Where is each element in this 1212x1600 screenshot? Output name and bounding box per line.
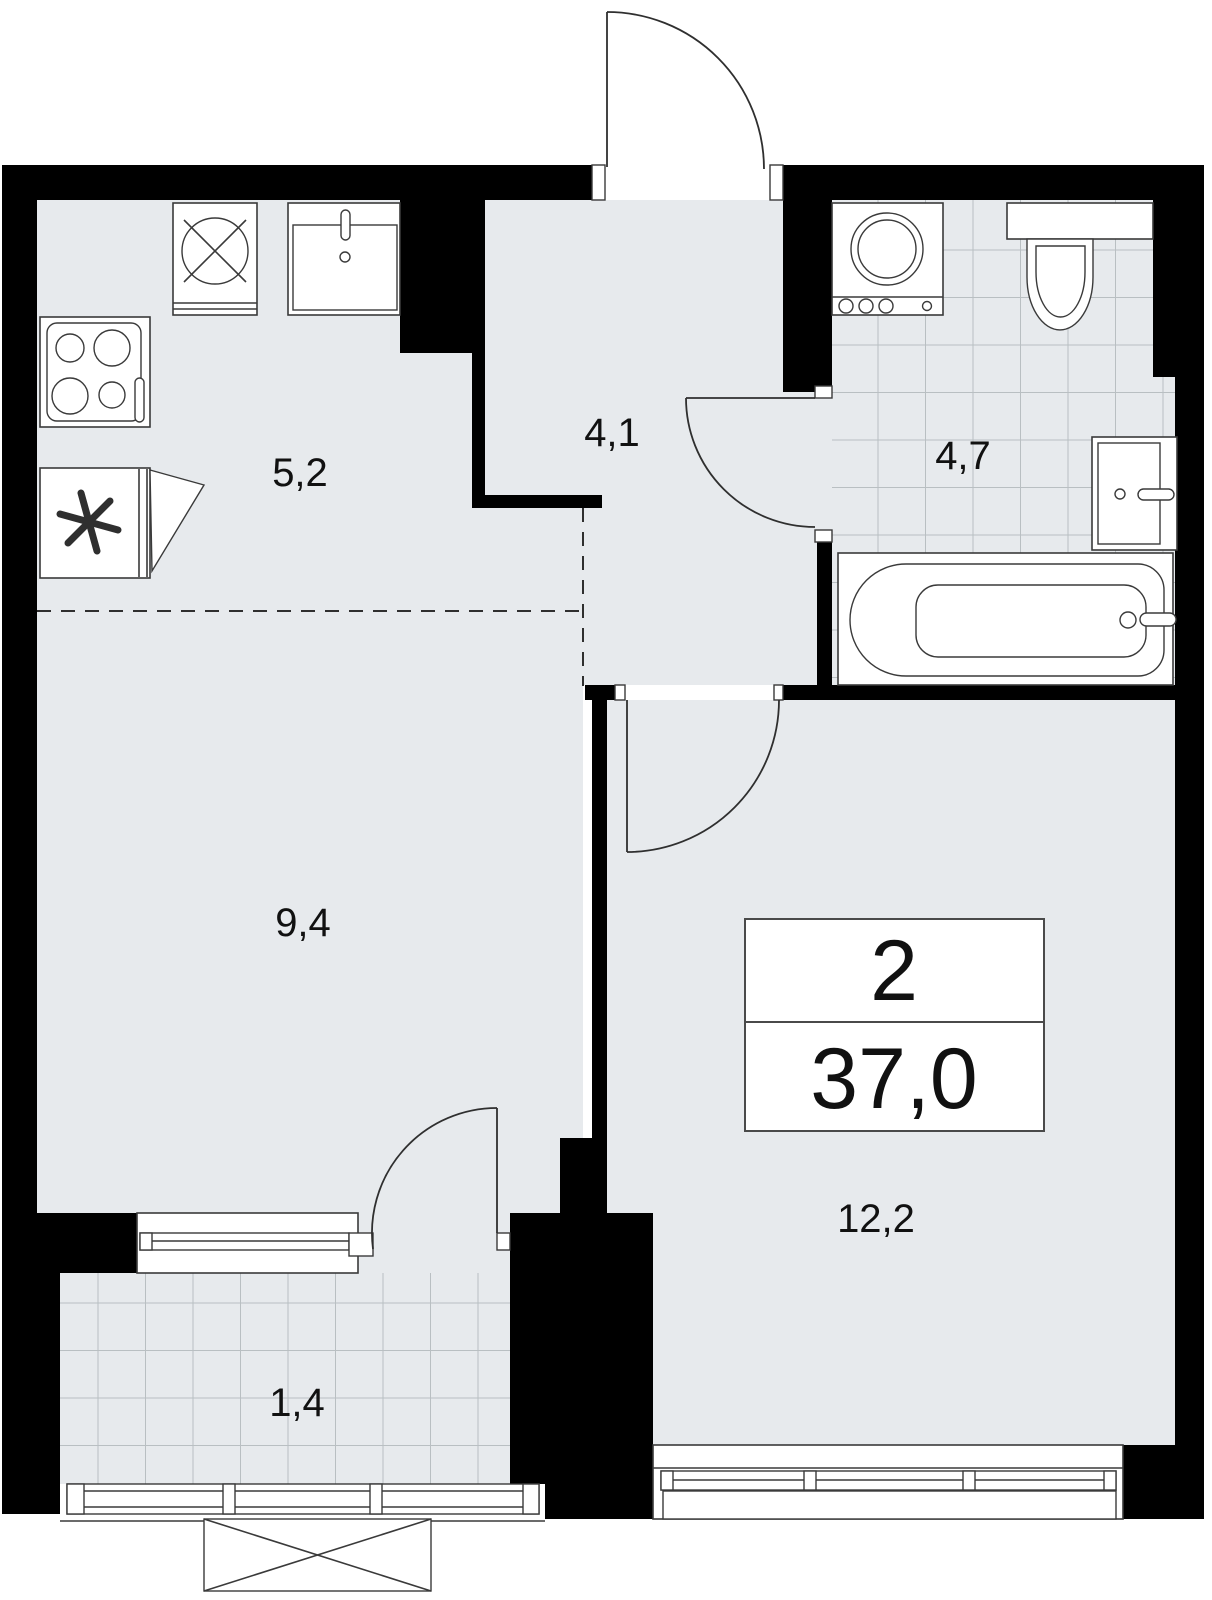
living-room-window bbox=[137, 1213, 373, 1273]
floor-balcony bbox=[60, 1273, 520, 1484]
kitchen-washing-machine-icon bbox=[173, 203, 257, 315]
balcony-exterior-box bbox=[204, 1519, 431, 1591]
wall-hall-bath-upper bbox=[783, 165, 832, 392]
wall-left bbox=[2, 200, 37, 1273]
wall-hall-horizontal bbox=[472, 495, 602, 508]
kitchen-sink-icon bbox=[288, 203, 400, 315]
wall-left-chunk bbox=[37, 1213, 137, 1273]
wall-corner-block bbox=[510, 1213, 653, 1519]
room-label-bedroom: 12,2 bbox=[837, 1197, 915, 1241]
bathroom-washing-machine-icon bbox=[832, 203, 943, 315]
info-rooms-count: 2 bbox=[870, 923, 918, 1019]
wall-top-left bbox=[2, 165, 605, 200]
wall-kitchen-hall-thick bbox=[400, 200, 485, 353]
bathtub-icon bbox=[838, 553, 1176, 685]
floor-plan-page: 2 37,0 5,2 4,1 4,7 9,4 12,2 1,4 bbox=[0, 0, 1212, 1600]
wall-hall-bath-lower bbox=[817, 530, 832, 685]
floor-hallway bbox=[485, 200, 832, 685]
bathroom-door-opening bbox=[815, 398, 832, 530]
wall-living-bedroom-partition bbox=[592, 700, 607, 1138]
stove-icon bbox=[40, 317, 150, 427]
wall-bedroom-top bbox=[774, 685, 1175, 700]
wall-partition-pocket bbox=[560, 1138, 607, 1213]
bathroom-sink-icon bbox=[1092, 437, 1177, 550]
bedroom-window bbox=[653, 1445, 1123, 1519]
entrance-door-swing-arc bbox=[607, 12, 764, 169]
room-label-bathroom: 4,7 bbox=[935, 434, 991, 478]
wall-left-lower bbox=[2, 1273, 60, 1514]
entrance-door bbox=[592, 12, 783, 200]
entrance-door-opening bbox=[605, 165, 770, 200]
info-total-area: 37,0 bbox=[810, 1031, 977, 1127]
balcony-door-passage bbox=[358, 1213, 510, 1273]
wall-right-top bbox=[1153, 200, 1204, 377]
wall-right bbox=[1175, 377, 1204, 1445]
room-label-living-room: 9,4 bbox=[275, 901, 331, 945]
room-label-kitchen: 5,2 bbox=[272, 451, 328, 495]
floor-plan: 2 37,0 5,2 4,1 4,7 9,4 12,2 1,4 bbox=[0, 0, 1212, 1600]
wall-kitchen-hall-thin bbox=[472, 353, 485, 497]
info-box: 2 37,0 bbox=[745, 919, 1044, 1131]
wall-top-right bbox=[770, 165, 1204, 200]
wall-right-bottom bbox=[1123, 1445, 1204, 1519]
room-label-hallway: 4,1 bbox=[584, 411, 640, 455]
balcony-window bbox=[60, 1484, 545, 1521]
room-label-balcony: 1,4 bbox=[269, 1381, 325, 1425]
